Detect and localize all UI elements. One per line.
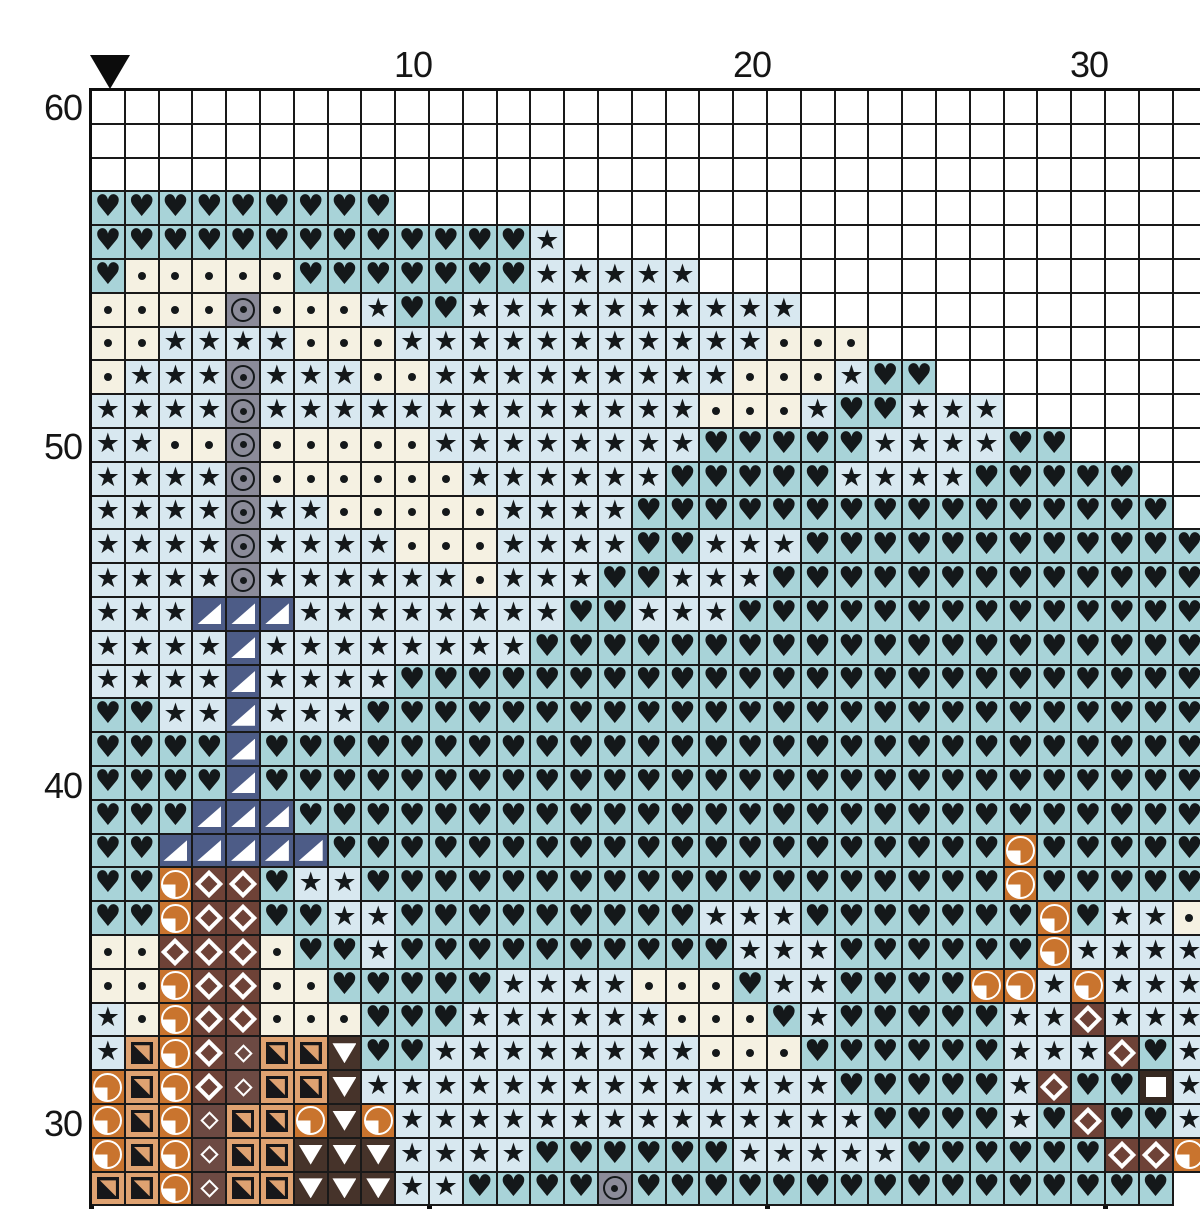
grid-cell-empty-white xyxy=(599,226,633,260)
heart-icon: ♥ xyxy=(973,767,1000,797)
grid-cell-teal-heart: ♥ xyxy=(362,192,396,226)
grid-cell-empty-white xyxy=(1174,294,1200,328)
star-icon: ★ xyxy=(1042,971,1066,998)
grid-cell-light-blue-star: ★ xyxy=(1038,1004,1072,1038)
quarter-circle-icon xyxy=(1175,1140,1200,1169)
grid-cell-light-blue-star: ★ xyxy=(160,666,194,700)
grid-cell-light-blue-star: ★ xyxy=(836,1105,870,1139)
grid-cell-teal-heart: ♥ xyxy=(565,835,599,869)
grid-cell-navy-corner-triangle xyxy=(227,632,261,666)
grid-cell-teal-heart: ♥ xyxy=(193,767,227,801)
star-icon: ★ xyxy=(806,1140,830,1167)
grid-cell-teal-heart: ♥ xyxy=(768,632,802,666)
grid-cell-cream-dot xyxy=(329,1004,363,1038)
grid-cell-cream-dot xyxy=(396,463,430,497)
grid-cell-empty-white xyxy=(768,159,802,193)
grid-cell-empty-white xyxy=(734,260,768,294)
grid-cell-teal-heart: ♥ xyxy=(261,192,295,226)
heart-icon: ♥ xyxy=(466,226,493,256)
grid-cell-light-blue-star: ★ xyxy=(667,1071,701,1105)
grid-cell-teal-heart: ♥ xyxy=(464,767,498,801)
dot-icon xyxy=(138,982,146,990)
heart-icon: ♥ xyxy=(838,1037,865,1067)
grid-cell-empty-white xyxy=(734,159,768,193)
grid-cell-brown-diamond xyxy=(227,902,261,936)
grid-cell-light-blue-star: ★ xyxy=(160,598,194,632)
grid-cell-teal-heart: ♥ xyxy=(802,463,836,497)
heart-icon: ♥ xyxy=(939,598,966,628)
star-icon: ★ xyxy=(366,666,390,693)
grid-cell-teal-heart: ♥ xyxy=(937,632,971,666)
grid-cell-light-blue-star: ★ xyxy=(362,598,396,632)
grid-cell-light-blue-star: ★ xyxy=(498,294,532,328)
grid-cell-cream-dot xyxy=(464,497,498,531)
heart-icon: ♥ xyxy=(94,834,121,864)
grid-cell-empty-white xyxy=(971,260,1005,294)
grid-cell-empty-white xyxy=(92,159,126,193)
grid-cell-navy-corner-triangle xyxy=(261,801,295,835)
grid-cell-navy-corner-triangle xyxy=(227,598,261,632)
grid-cell-teal-heart: ♥ xyxy=(734,497,768,531)
grid-cell-empty-white xyxy=(1072,429,1106,463)
grid-cell-teal-heart: ♥ xyxy=(869,970,903,1004)
star-icon: ★ xyxy=(907,464,931,491)
grid-cell-cream-dot xyxy=(734,1037,768,1071)
grid-cell-light-blue-star: ★ xyxy=(261,361,295,395)
grid-cell-light-blue-star: ★ xyxy=(126,497,160,531)
grid-cell-light-blue-star: ★ xyxy=(92,463,126,497)
triangle-down-icon xyxy=(366,1178,390,1198)
grid-cell-teal-heart: ♥ xyxy=(836,598,870,632)
grid-cell-teal-heart: ♥ xyxy=(498,902,532,936)
grid-cell-cream-dot xyxy=(160,294,194,328)
grid-cell-teal-heart: ♥ xyxy=(1072,598,1106,632)
heart-icon: ♥ xyxy=(770,463,797,493)
grid-cell-teal-heart: ♥ xyxy=(1038,1105,1072,1139)
dot-icon xyxy=(138,1015,146,1023)
heart-icon: ♥ xyxy=(973,1003,1000,1033)
star-icon: ★ xyxy=(96,497,120,524)
grid-cell-empty-white xyxy=(768,91,802,125)
grid-cell-empty-white xyxy=(1072,125,1106,159)
star-icon: ★ xyxy=(434,362,458,389)
heart-icon: ♥ xyxy=(601,665,628,695)
star-icon: ★ xyxy=(569,1038,593,1065)
dot-icon xyxy=(408,373,416,381)
grid-cell-teal-heart: ♥ xyxy=(768,1004,802,1038)
star-icon: ★ xyxy=(434,1072,458,1099)
heart-icon: ♥ xyxy=(94,868,121,898)
grid-cell-empty-white xyxy=(836,226,870,260)
grid-cell-teal-heart: ♥ xyxy=(531,666,565,700)
circle-dot-icon xyxy=(231,500,255,524)
grid-cell-light-blue-star: ★ xyxy=(1140,970,1174,1004)
heart-icon: ♥ xyxy=(297,226,324,256)
heart-icon: ♥ xyxy=(1007,1139,1034,1169)
grid-cell-teal-heart: ♥ xyxy=(836,1004,870,1038)
square-diagonal-icon xyxy=(300,1076,322,1098)
grid-cell-light-blue-star: ★ xyxy=(329,666,363,700)
grid-cell-tan-split-square xyxy=(295,1037,329,1071)
heart-icon: ♥ xyxy=(906,868,933,898)
heart-icon: ♥ xyxy=(1041,496,1068,526)
star-icon: ★ xyxy=(468,599,492,626)
grid-cell-light-blue-star: ★ xyxy=(599,294,633,328)
heart-icon: ♥ xyxy=(939,1172,966,1202)
grid-cell-teal-heart: ♥ xyxy=(971,699,1005,733)
heart-icon: ♥ xyxy=(872,496,899,526)
star-icon: ★ xyxy=(197,497,221,524)
grid-cell-cream-dot xyxy=(126,260,160,294)
grid-cell-light-blue-star: ★ xyxy=(802,970,836,1004)
pattern-grid: ♥♥♥♥♥♥♥♥♥♥♥♥♥♥♥♥♥♥♥♥♥♥★♥♥♥♥♥♥♥♥★★★★★★♥♥★… xyxy=(92,91,1200,1206)
heart-icon: ♥ xyxy=(399,665,426,695)
heart-icon: ♥ xyxy=(162,801,189,831)
quarter-circle-icon xyxy=(1074,971,1103,1000)
heart-icon: ♥ xyxy=(1007,733,1034,763)
quarter-circle-icon xyxy=(93,1106,122,1135)
heart-icon: ♥ xyxy=(500,902,527,932)
heart-icon: ♥ xyxy=(601,598,628,628)
grid-cell-light-blue-star: ★ xyxy=(531,294,565,328)
grid-cell-teal-heart: ♥ xyxy=(1005,429,1039,463)
dot-icon xyxy=(340,508,348,516)
grid-cell-empty-white xyxy=(937,260,971,294)
grid-cell-teal-heart: ♥ xyxy=(396,835,430,869)
dot-icon xyxy=(340,475,348,483)
heart-icon: ♥ xyxy=(838,530,865,560)
grid-cell-teal-heart: ♥ xyxy=(869,497,903,531)
square-diagonal-icon xyxy=(232,1144,254,1166)
heart-icon: ♥ xyxy=(601,801,628,831)
grid-cell-teal-heart: ♥ xyxy=(227,192,261,226)
grid-cell-light-blue-star: ★ xyxy=(193,361,227,395)
heart-icon: ♥ xyxy=(1075,733,1102,763)
grid-cell-brown-diamond xyxy=(193,970,227,1004)
dot-icon xyxy=(408,542,416,550)
grid-cell-empty-white xyxy=(802,260,836,294)
grid-cell-cream-dot xyxy=(92,294,126,328)
heart-icon: ♥ xyxy=(196,733,223,763)
grid-cell-light-blue-star: ★ xyxy=(464,429,498,463)
diamond-outline-icon xyxy=(195,904,223,932)
star-icon: ★ xyxy=(400,1173,424,1200)
grid-cell-light-blue-star: ★ xyxy=(498,1139,532,1173)
grid-cell-teal-heart: ♥ xyxy=(329,192,363,226)
star-icon: ★ xyxy=(163,700,187,727)
heart-icon: ♥ xyxy=(1007,936,1034,966)
grid-cell-light-blue-star: ★ xyxy=(1005,1037,1039,1071)
grid-cell-light-blue-star: ★ xyxy=(565,395,599,429)
grid-cell-empty-white xyxy=(464,192,498,226)
star-icon: ★ xyxy=(163,328,187,355)
star-icon: ★ xyxy=(501,1038,525,1065)
star-icon: ★ xyxy=(163,666,187,693)
heart-icon: ♥ xyxy=(1142,1105,1169,1135)
star-icon: ★ xyxy=(569,1072,593,1099)
grid-cell-teal-heart: ♥ xyxy=(836,936,870,970)
grid-cell-teal-heart: ♥ xyxy=(362,970,396,1004)
grid-cell-teal-heart: ♥ xyxy=(1038,868,1072,902)
grid-cell-teal-heart: ♥ xyxy=(295,902,329,936)
heart-icon: ♥ xyxy=(1108,834,1135,864)
heart-icon: ♥ xyxy=(669,801,696,831)
grid-cell-light-blue-star: ★ xyxy=(667,598,701,632)
grid-cell-chocolate-down-triangle xyxy=(362,1139,396,1173)
heart-icon: ♥ xyxy=(432,970,459,1000)
heart-icon: ♥ xyxy=(770,632,797,662)
diamond-outline-icon xyxy=(195,870,223,898)
heart-icon: ♥ xyxy=(94,767,121,797)
grid-cell-teal-heart: ♥ xyxy=(295,767,329,801)
grid-cell-teal-heart: ♥ xyxy=(734,801,768,835)
grid-cell-light-blue-star: ★ xyxy=(193,463,227,497)
grid-cell-teal-heart: ♥ xyxy=(362,260,396,294)
grid-cell-empty-white xyxy=(1106,260,1140,294)
circle-dot-icon xyxy=(231,433,255,457)
grid-cell-teal-heart: ♥ xyxy=(667,835,701,869)
heart-icon: ♥ xyxy=(1075,902,1102,932)
star-icon: ★ xyxy=(603,1004,627,1031)
grid-cell-empty-white xyxy=(599,192,633,226)
circle-dot-icon xyxy=(231,365,255,389)
star-icon: ★ xyxy=(434,430,458,457)
grid-cell-cream-dot xyxy=(261,260,295,294)
heart-icon: ♥ xyxy=(635,530,662,560)
grid-cell-light-blue-star: ★ xyxy=(700,294,734,328)
grid-cell-empty-white xyxy=(937,361,971,395)
grid-cell-teal-heart: ♥ xyxy=(734,733,768,767)
grid-cell-teal-heart: ♥ xyxy=(667,497,701,531)
heart-icon: ♥ xyxy=(1108,733,1135,763)
heart-icon: ♥ xyxy=(669,1139,696,1169)
heart-icon: ♥ xyxy=(331,801,358,831)
grid-cell-light-blue-star: ★ xyxy=(869,463,903,497)
star-icon: ★ xyxy=(535,227,559,254)
grid-cell-light-blue-star: ★ xyxy=(396,632,430,666)
grid-cell-empty-white xyxy=(971,226,1005,260)
heart-icon: ♥ xyxy=(601,868,628,898)
grid-cell-teal-heart: ♥ xyxy=(430,902,464,936)
heart-icon: ♥ xyxy=(1041,598,1068,628)
grid-cell-light-blue-star: ★ xyxy=(1174,1105,1200,1139)
diamond-outline-icon xyxy=(1074,1005,1102,1033)
grid-cell-empty-white xyxy=(869,91,903,125)
grid-cell-light-blue-star: ★ xyxy=(430,395,464,429)
grid-cell-empty-white xyxy=(565,125,599,159)
grid-cell-cream-dot xyxy=(126,328,160,362)
grid-cell-teal-heart: ♥ xyxy=(971,801,1005,835)
grid-cell-teal-heart: ♥ xyxy=(498,767,532,801)
quarter-circle-icon xyxy=(296,1106,325,1135)
grid-cell-light-blue-star: ★ xyxy=(531,970,565,1004)
grid-cell-light-blue-star: ★ xyxy=(160,632,194,666)
grid-cell-teal-heart: ♥ xyxy=(700,733,734,767)
grid-cell-light-blue-star: ★ xyxy=(329,395,363,429)
grid-cell-empty-white xyxy=(971,125,1005,159)
star-icon: ★ xyxy=(96,565,120,592)
quarter-circle-icon xyxy=(1040,904,1069,933)
grid-cell-navy-corner-triangle xyxy=(193,835,227,869)
grid-cell-teal-heart: ♥ xyxy=(802,530,836,564)
grid-cell-teal-heart: ♥ xyxy=(869,564,903,598)
grid-cell-empty-white xyxy=(1038,361,1072,395)
grid-cell-light-blue-star: ★ xyxy=(903,429,937,463)
grid-cell-teal-heart: ♥ xyxy=(599,902,633,936)
grid-cell-navy-corner-triangle xyxy=(227,835,261,869)
grid-cell-teal-heart: ♥ xyxy=(362,767,396,801)
heart-icon: ♥ xyxy=(973,530,1000,560)
star-icon: ★ xyxy=(907,396,931,423)
heart-icon: ♥ xyxy=(263,868,290,898)
grid-cell-light-blue-star: ★ xyxy=(160,463,194,497)
grid-cell-teal-heart: ♥ xyxy=(599,632,633,666)
grid-cell-empty-white xyxy=(1038,294,1072,328)
grid-cell-light-blue-star: ★ xyxy=(667,1037,701,1071)
star-icon: ★ xyxy=(400,1106,424,1133)
dot-icon xyxy=(746,373,754,381)
diamond-outline-icon xyxy=(195,938,223,966)
star-icon: ★ xyxy=(434,565,458,592)
heart-icon: ♥ xyxy=(162,192,189,222)
star-icon: ★ xyxy=(299,633,323,660)
heart-icon: ♥ xyxy=(399,1003,426,1033)
grid-cell-teal-heart: ♥ xyxy=(971,530,1005,564)
grid-cell-teal-heart: ♥ xyxy=(903,868,937,902)
grid-cell-teal-heart: ♥ xyxy=(700,463,734,497)
grid-cell-teal-heart: ♥ xyxy=(869,936,903,970)
quarter-circle-icon xyxy=(161,1005,190,1034)
heart-icon: ♥ xyxy=(568,699,595,729)
diamond-outline-icon xyxy=(1141,1140,1169,1168)
grid-cell-teal-heart: ♥ xyxy=(836,1037,870,1071)
grid-cell-light-blue-star: ★ xyxy=(464,632,498,666)
grid-cell-empty-white xyxy=(531,91,565,125)
grid-cell-teal-heart: ♥ xyxy=(1072,767,1106,801)
grid-cell-chocolate-down-triangle xyxy=(329,1173,363,1207)
star-icon: ★ xyxy=(197,700,221,727)
heart-icon: ♥ xyxy=(635,868,662,898)
square-diagonal-icon xyxy=(131,1042,153,1064)
star-icon: ★ xyxy=(603,497,627,524)
heart-icon: ♥ xyxy=(804,767,831,797)
grid-cell-empty-white xyxy=(667,125,701,159)
heart-icon: ♥ xyxy=(1075,665,1102,695)
grid-cell-teal-heart: ♥ xyxy=(1174,598,1200,632)
dot-icon xyxy=(374,441,382,449)
heart-icon: ♥ xyxy=(1176,598,1200,628)
grid-cell-teal-heart: ♥ xyxy=(937,835,971,869)
heart-icon: ♥ xyxy=(534,699,561,729)
grid-cell-light-blue-star: ★ xyxy=(430,1173,464,1207)
grid-cell-tan-split-square xyxy=(92,1173,126,1207)
heart-icon: ♥ xyxy=(162,733,189,763)
grid-cell-teal-heart: ♥ xyxy=(1174,699,1200,733)
grid-cell-empty-white xyxy=(903,91,937,125)
heart-icon: ♥ xyxy=(1142,767,1169,797)
grid-cell-light-blue-star: ★ xyxy=(937,395,971,429)
heart-icon: ♥ xyxy=(838,767,865,797)
grid-cell-teal-heart: ♥ xyxy=(464,226,498,260)
grid-cell-empty-white xyxy=(802,294,836,328)
grid-cell-orange-quarter-circle xyxy=(1174,1139,1200,1173)
grid-cell-light-blue-star: ★ xyxy=(599,530,633,564)
star-icon: ★ xyxy=(130,497,154,524)
heart-icon: ♥ xyxy=(973,463,1000,493)
grid-cell-empty-white xyxy=(1140,294,1174,328)
grid-cell-light-blue-star: ★ xyxy=(667,395,701,429)
grid-cell-brown-diamond xyxy=(193,1071,227,1105)
star-icon: ★ xyxy=(637,1072,661,1099)
grid-cell-light-blue-star: ★ xyxy=(869,1139,903,1173)
grid-cell-teal-heart: ♥ xyxy=(1106,632,1140,666)
heart-icon: ♥ xyxy=(1041,733,1068,763)
heart-icon: ♥ xyxy=(872,1003,899,1033)
grid-cell-cream-dot xyxy=(295,294,329,328)
grid-cell-teal-heart: ♥ xyxy=(869,530,903,564)
grid-cell-light-blue-star: ★ xyxy=(565,1037,599,1071)
grid-cell-empty-white xyxy=(802,226,836,260)
grid-cell-light-blue-star: ★ xyxy=(227,328,261,362)
grid-cell-empty-white xyxy=(633,159,667,193)
grid-cell-tan-split-square xyxy=(261,1105,295,1139)
star-icon: ★ xyxy=(670,565,694,592)
heart-icon: ♥ xyxy=(737,598,764,628)
heart-icon: ♥ xyxy=(432,699,459,729)
grid-cell-light-blue-star: ★ xyxy=(430,632,464,666)
grid-cell-empty-white xyxy=(1072,361,1106,395)
grid-cell-empty-white xyxy=(531,159,565,193)
grid-cell-light-blue-star: ★ xyxy=(1038,1037,1072,1071)
grid-cell-light-blue-star: ★ xyxy=(633,429,667,463)
grid-cell-light-blue-star: ★ xyxy=(667,564,701,598)
star-icon: ★ xyxy=(670,328,694,355)
heart-icon: ♥ xyxy=(263,733,290,763)
triangle-down-icon xyxy=(366,1145,390,1165)
grid-cell-teal-heart: ♥ xyxy=(1072,902,1106,936)
star-icon: ★ xyxy=(839,1106,863,1133)
dot-icon xyxy=(307,339,315,347)
heart-icon: ♥ xyxy=(94,801,121,831)
grid-cell-teal-heart: ♥ xyxy=(498,1173,532,1207)
grid-cell-teal-heart: ♥ xyxy=(633,1139,667,1173)
grid-cell-teal-heart: ♥ xyxy=(971,463,1005,497)
heart-icon: ♥ xyxy=(939,665,966,695)
grid-cell-empty-white xyxy=(430,91,464,125)
heart-icon: ♥ xyxy=(399,1037,426,1067)
heart-icon: ♥ xyxy=(770,1172,797,1202)
grid-cell-light-blue-star: ★ xyxy=(261,699,295,733)
star-icon: ★ xyxy=(265,666,289,693)
grid-cell-teal-heart: ♥ xyxy=(498,835,532,869)
dot-icon xyxy=(307,1015,315,1023)
heart-icon: ♥ xyxy=(432,733,459,763)
star-icon: ★ xyxy=(332,700,356,727)
grid-cell-empty-white xyxy=(802,125,836,159)
grid-cell-light-blue-star: ★ xyxy=(667,328,701,362)
heart-icon: ♥ xyxy=(568,1172,595,1202)
heart-icon: ♥ xyxy=(1075,699,1102,729)
heart-icon: ♥ xyxy=(1041,665,1068,695)
diamond-outline-icon xyxy=(229,938,257,966)
heart-icon: ♥ xyxy=(973,632,1000,662)
grid-cell-light-blue-star: ★ xyxy=(599,328,633,362)
heart-icon: ♥ xyxy=(770,733,797,763)
star-icon: ★ xyxy=(163,497,187,524)
triangle-lower-right-icon xyxy=(265,840,289,861)
grid-cell-cream-dot xyxy=(295,1004,329,1038)
grid-cell-navy-corner-triangle xyxy=(295,835,329,869)
